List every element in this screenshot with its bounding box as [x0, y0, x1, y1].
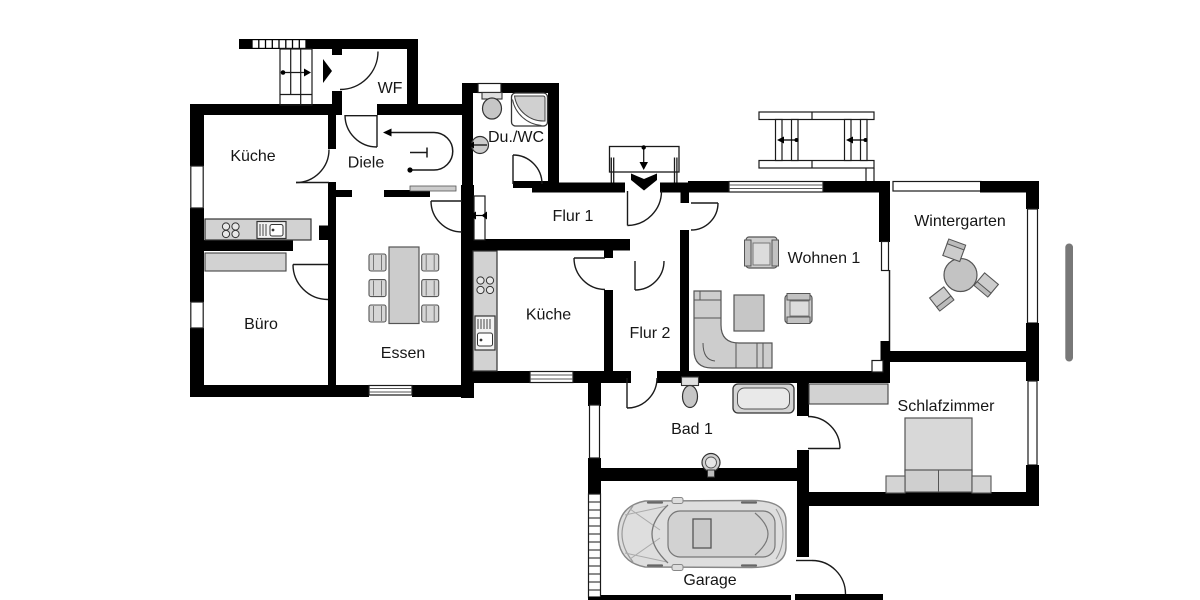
svg-text:Flur 1: Flur 1 — [553, 208, 594, 225]
svg-text:Büro: Büro — [244, 316, 278, 333]
svg-text:Küche: Küche — [230, 148, 275, 165]
svg-text:Du./WC: Du./WC — [488, 129, 544, 146]
svg-text:Bad 1: Bad 1 — [671, 421, 713, 438]
svg-text:Flur 2: Flur 2 — [630, 325, 671, 342]
svg-text:Wohnen 1: Wohnen 1 — [788, 250, 861, 267]
svg-text:Küche: Küche — [526, 307, 571, 324]
svg-text:Diele: Diele — [348, 155, 385, 172]
svg-text:Garage: Garage — [683, 572, 736, 589]
svg-text:Schlafzimmer: Schlafzimmer — [898, 398, 996, 415]
svg-text:WF: WF — [378, 80, 403, 97]
svg-text:Essen: Essen — [381, 345, 425, 362]
svg-text:Wintergarten: Wintergarten — [914, 213, 1006, 230]
